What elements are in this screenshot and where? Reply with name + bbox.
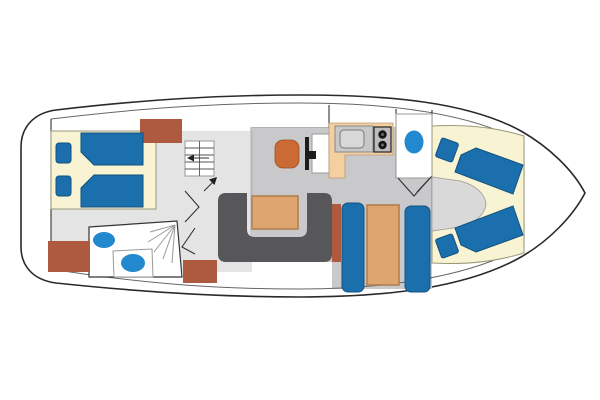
aft-head-toilet [121, 254, 145, 272]
aft-locker-corridor [183, 260, 217, 283]
dinette-locker [332, 204, 341, 262]
dinette-table [367, 205, 399, 285]
helm-stool [275, 140, 299, 168]
galley-sink-basin [340, 130, 364, 148]
aft-pillow-port [56, 143, 71, 163]
companionway-stairs [185, 141, 214, 176]
dinette-bench-left [342, 203, 364, 292]
forward-head-toilet [405, 131, 424, 154]
floorplan-canvas [0, 0, 600, 400]
galley-stove [374, 127, 391, 152]
aft-pillow-starboard [56, 176, 71, 196]
dinette-bench-right [405, 206, 430, 292]
aft-bed-port [81, 133, 143, 165]
aft-cabin-wardrobe [140, 119, 182, 143]
boat-floorplan-diagram [0, 0, 600, 400]
salon-table [252, 196, 298, 229]
aft-bed-starboard [81, 175, 143, 207]
aft-head-sink [93, 232, 115, 248]
helm-console [305, 137, 309, 170]
helm-wheel [309, 151, 316, 159]
aft-locker-port [48, 241, 90, 272]
